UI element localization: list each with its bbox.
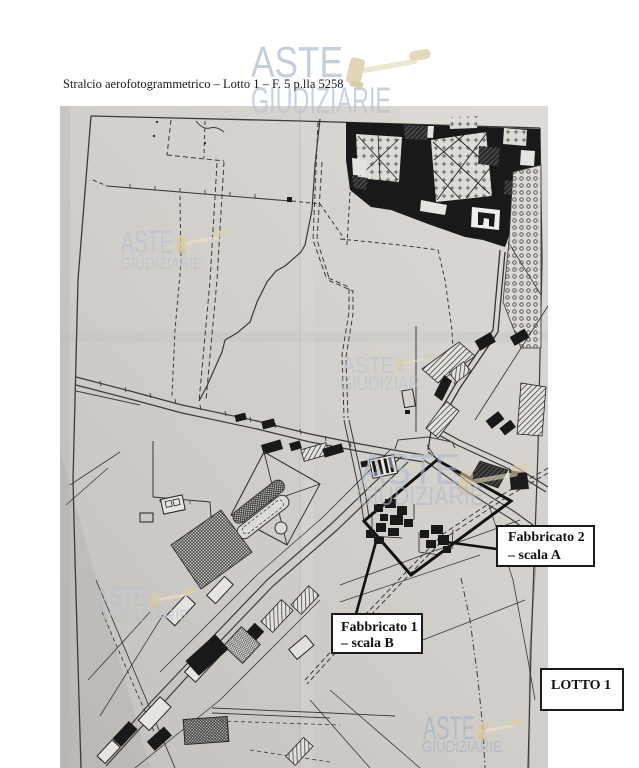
svg-text:Fabbricato 1: Fabbricato 1 (341, 620, 418, 635)
svg-text:LOTTO 1: LOTTO 1 (551, 678, 611, 693)
svg-text:GIUDIZIARIE: GIUDIZIARIE (96, 606, 190, 625)
svg-text:Fabbricato 2: Fabbricato 2 (508, 530, 585, 545)
svg-text:– scala B: – scala B (340, 636, 394, 651)
svg-text:GIUDIZIARIE: GIUDIZIARIE (422, 739, 502, 756)
svg-text:– scala A: – scala A (507, 548, 562, 563)
svg-text:GIUDIZIARIE: GIUDIZIARIE (356, 481, 484, 511)
svg-text:Stralcio aerofotogrammetrico –: Stralcio aerofotogrammetrico – Lotto 1 –… (63, 77, 344, 91)
svg-text:GIUDIZIARIE: GIUDIZIARIE (121, 254, 202, 273)
svg-text:GIUDIZIAR: GIUDIZIAR (340, 374, 420, 395)
